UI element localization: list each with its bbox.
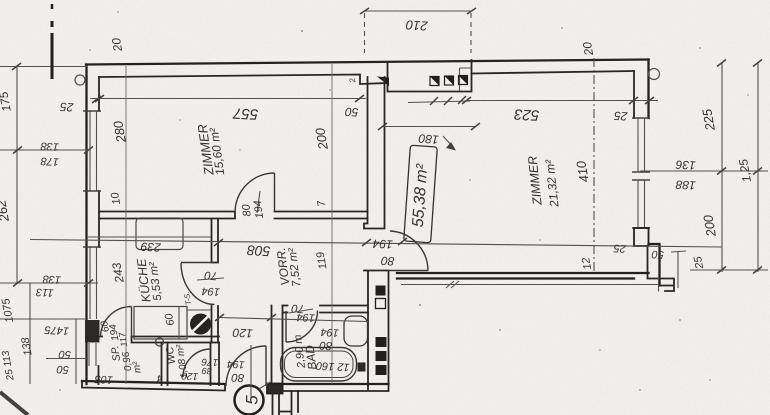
svg-text:120: 120 xyxy=(232,325,253,340)
svg-text:138: 138 xyxy=(39,139,59,152)
svg-text:m²: m² xyxy=(131,360,144,374)
svg-text:194: 194 xyxy=(252,200,266,220)
svg-text:523: 523 xyxy=(513,105,540,123)
svg-text:25: 25 xyxy=(613,109,628,124)
svg-text:1475: 1475 xyxy=(43,323,69,336)
svg-text:194: 194 xyxy=(296,311,315,324)
svg-text:194: 194 xyxy=(227,358,245,371)
svg-text:120: 120 xyxy=(181,370,199,382)
svg-text:176: 176 xyxy=(201,356,219,368)
svg-text:80: 80 xyxy=(319,339,333,352)
svg-text:194: 194 xyxy=(320,326,339,339)
svg-text:89: 89 xyxy=(202,366,213,377)
svg-text:138: 138 xyxy=(41,272,61,285)
svg-text:210: 210 xyxy=(405,17,429,33)
svg-text:25: 25 xyxy=(613,242,628,255)
svg-text:20: 20 xyxy=(580,41,596,58)
svg-text:5: 5 xyxy=(242,395,261,405)
svg-text:508: 508 xyxy=(246,242,270,259)
svg-text:50: 50 xyxy=(56,363,70,376)
svg-text:12 160: 12 160 xyxy=(315,359,350,373)
svg-text:80: 80 xyxy=(380,254,394,269)
svg-text:194: 194 xyxy=(201,285,220,298)
svg-text:178: 178 xyxy=(39,154,59,167)
svg-text:4: 4 xyxy=(156,372,163,383)
svg-text:194: 194 xyxy=(372,236,393,251)
svg-text:180: 180 xyxy=(418,131,439,146)
svg-text:557: 557 xyxy=(232,104,259,122)
svg-text:50: 50 xyxy=(344,105,358,120)
svg-text:136: 136 xyxy=(675,157,696,172)
svg-text:12: 12 xyxy=(580,256,594,270)
svg-text:50: 50 xyxy=(651,248,665,261)
svg-text:105: 105 xyxy=(93,372,113,385)
svg-text:20: 20 xyxy=(109,37,125,54)
svg-text:188: 188 xyxy=(675,177,696,192)
svg-text:80: 80 xyxy=(231,371,245,384)
svg-text:239: 239 xyxy=(140,239,162,254)
svg-text:113: 113 xyxy=(35,285,54,298)
svg-text:50: 50 xyxy=(58,348,72,361)
svg-text:25: 25 xyxy=(59,100,74,115)
